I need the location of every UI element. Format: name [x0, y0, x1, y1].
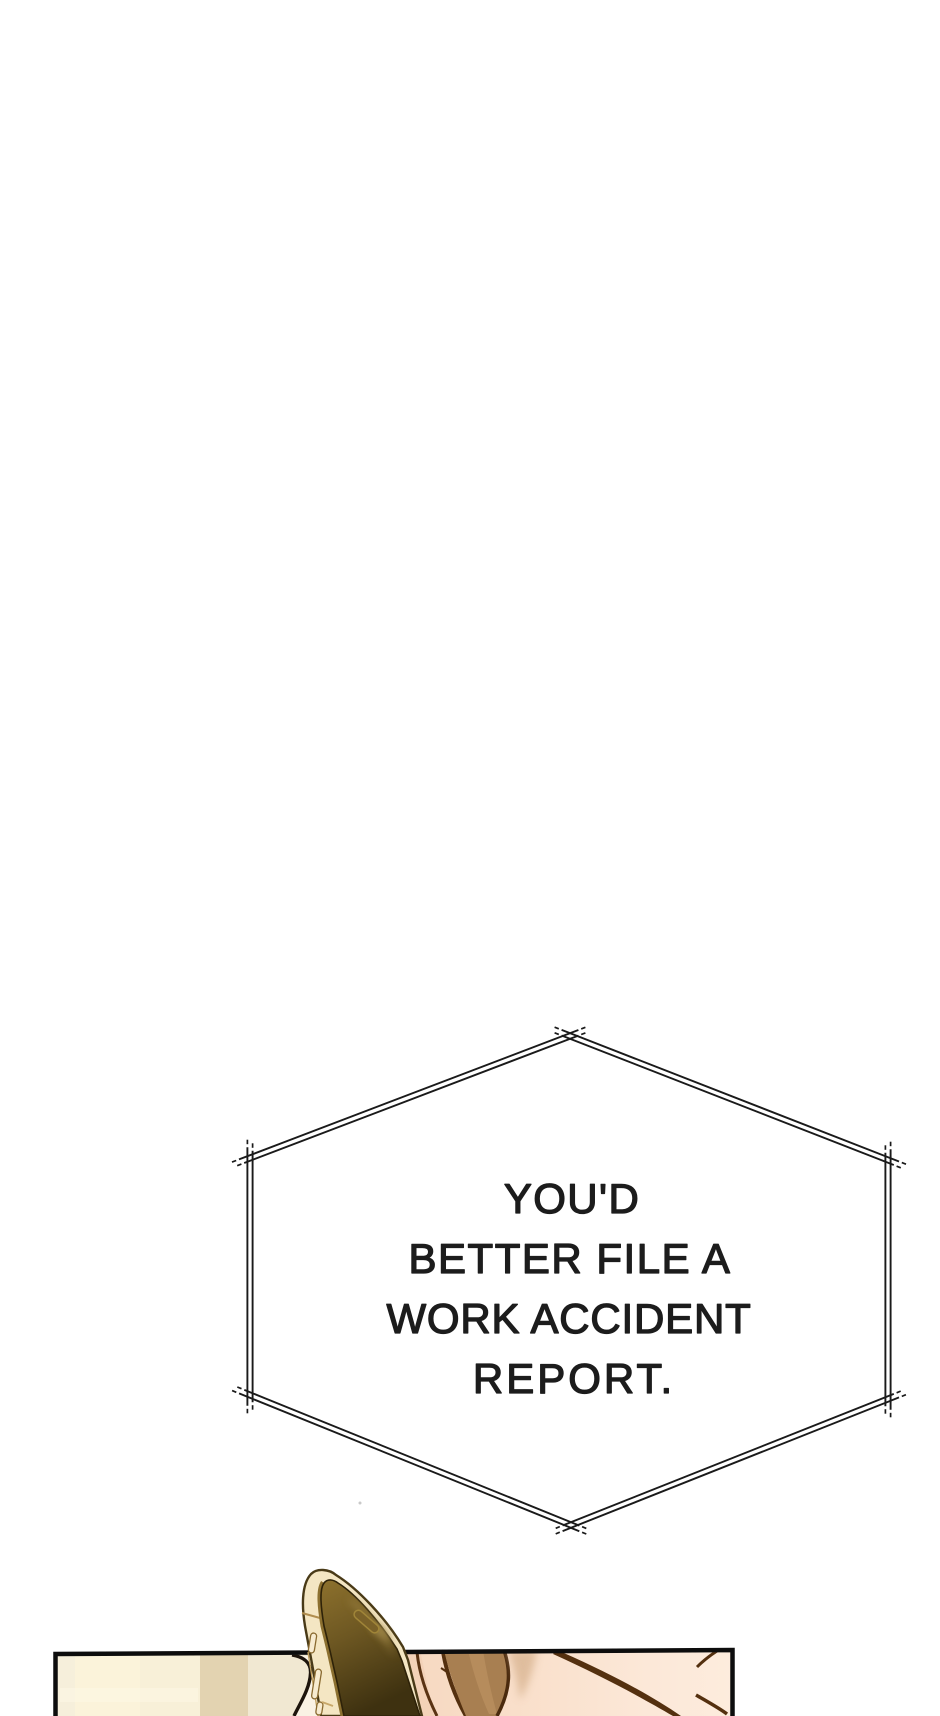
svg-text:REPORT.: REPORT. — [473, 1355, 675, 1402]
svg-text:BETTER FILE A: BETTER FILE A — [409, 1235, 732, 1282]
svg-text:WORK ACCIDENT: WORK ACCIDENT — [386, 1295, 751, 1342]
svg-text:YOU'D: YOU'D — [504, 1175, 640, 1222]
